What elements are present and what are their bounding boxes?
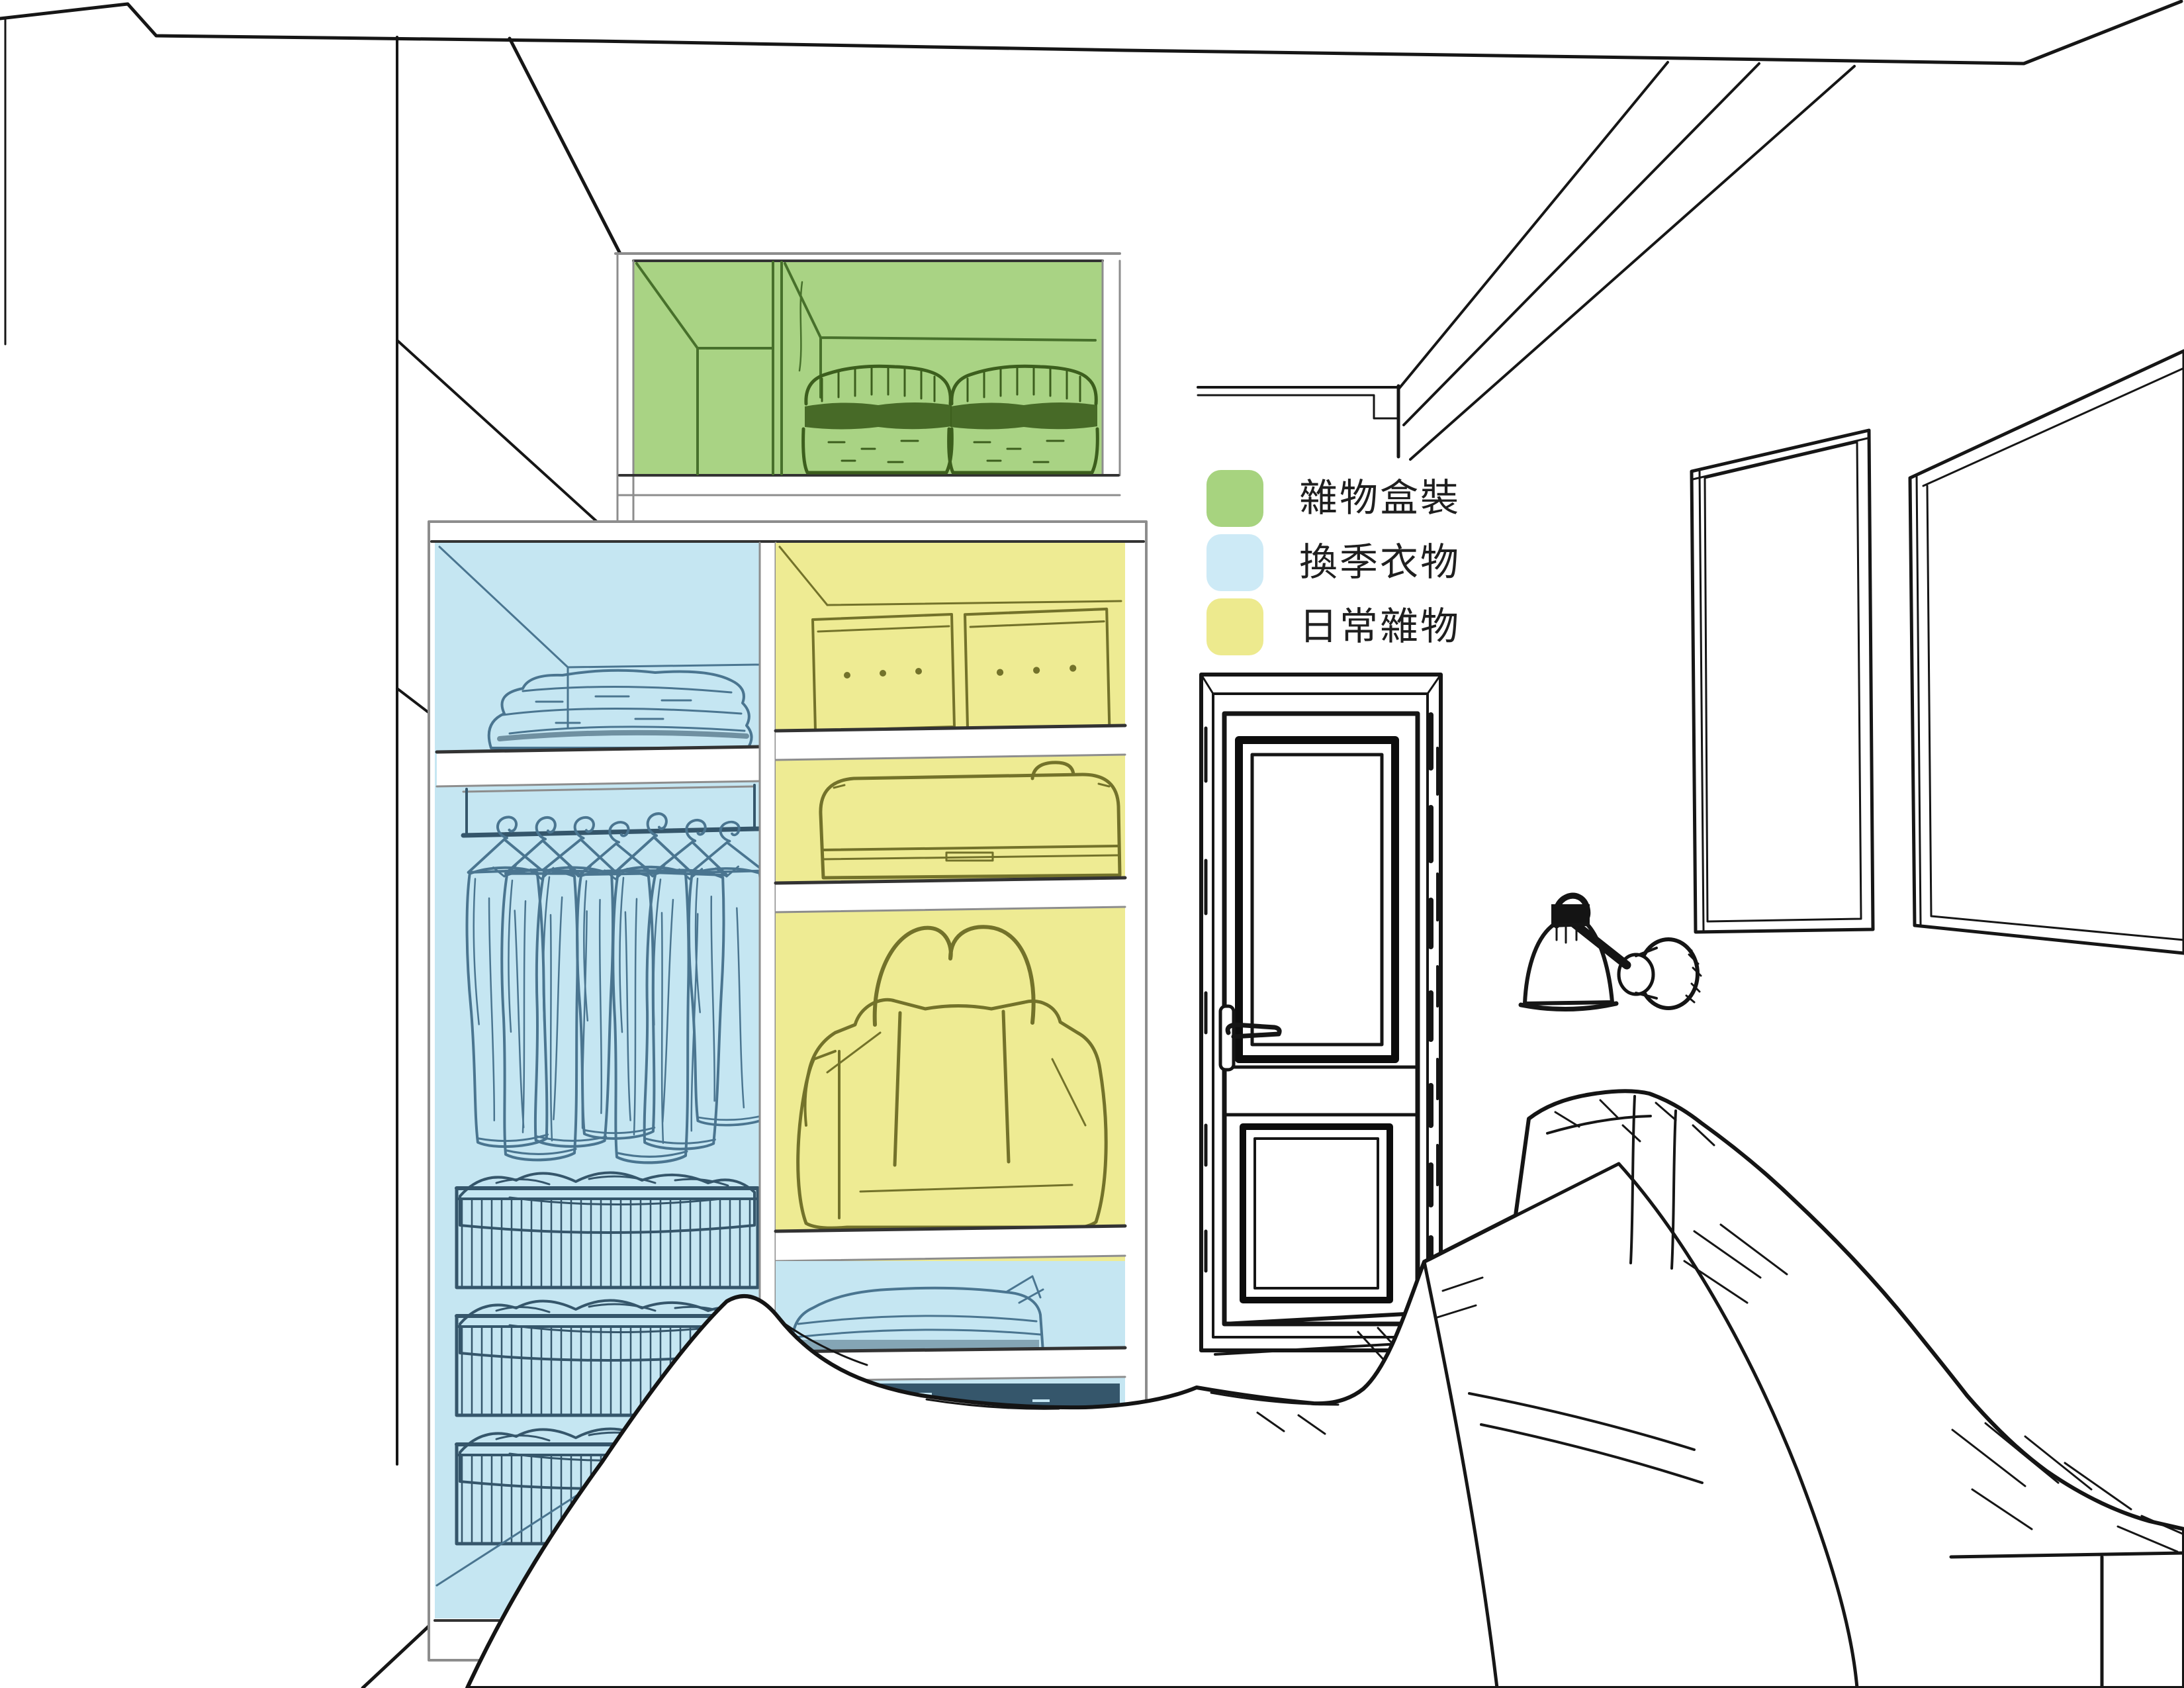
legend-item-misc-boxed: 雜物盒裝 <box>1206 470 1461 527</box>
legend-label: 雜物盒裝 <box>1299 470 1461 527</box>
closet-top-cabinet-misc-boxes-zone <box>615 254 1120 541</box>
legend-item-daily-items: 日常雜物 <box>1206 598 1461 655</box>
door <box>1201 675 1448 1365</box>
ceiling-soffit-lines <box>1398 62 1854 459</box>
lamp-shade <box>1525 924 1612 1004</box>
room-line-drawing <box>0 0 2184 1688</box>
wall-lamp <box>1521 896 1701 1009</box>
legend-swatch-yellow <box>1206 598 1263 655</box>
legend-item-seasonal-clothes: 換季衣物 <box>1206 534 1461 591</box>
legend-swatch-blue <box>1206 534 1263 591</box>
bedroom-closet-organization-diagram: { "legend": { "items": [ { "label": "雜物盒… <box>0 0 2184 1688</box>
legend-label: 日常雜物 <box>1299 598 1461 655</box>
picture-frame-left <box>1692 430 1873 932</box>
legend-swatch-green <box>1206 470 1263 527</box>
legend: 雜物盒裝 換季衣物 日常雜物 <box>1206 470 1461 655</box>
legend-label: 換季衣物 <box>1299 534 1461 591</box>
ceiling-line <box>0 1 2181 64</box>
closet-right-column-daily-items-zone <box>776 543 1125 1261</box>
picture-frames <box>1692 351 2184 953</box>
picture-frame-right <box>1910 351 2184 953</box>
